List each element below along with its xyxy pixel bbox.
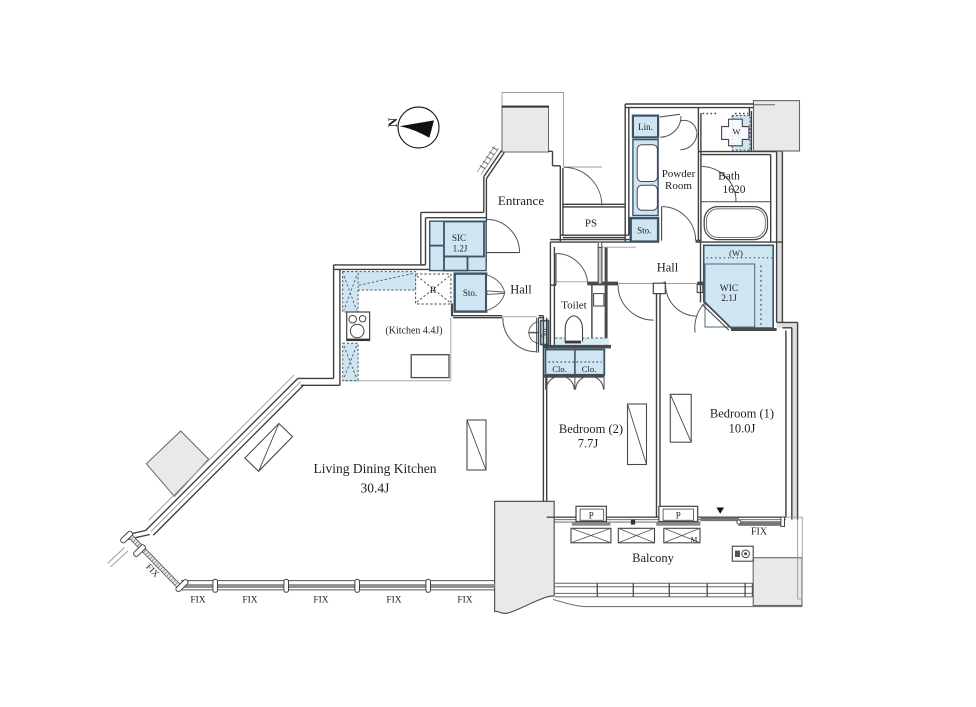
svg-text:Clo.: Clo. xyxy=(552,364,566,374)
svg-text:FIX: FIX xyxy=(386,596,401,606)
svg-text:Room: Room xyxy=(665,180,692,192)
svg-text:Clo.: Clo. xyxy=(582,364,596,374)
svg-text:Bedroom (1): Bedroom (1) xyxy=(710,407,774,421)
svg-text:Sto.: Sto. xyxy=(463,288,477,298)
svg-text:Hall: Hall xyxy=(510,283,532,297)
svg-text:R: R xyxy=(430,286,437,296)
svg-text:FIX: FIX xyxy=(313,596,328,606)
svg-text:Entrance: Entrance xyxy=(498,193,544,208)
svg-text:FIX: FIX xyxy=(751,527,768,538)
svg-text:Toilet: Toilet xyxy=(561,300,587,312)
svg-text:30.4J: 30.4J xyxy=(361,481,390,496)
svg-text:Living Dining Kitchen: Living Dining Kitchen xyxy=(314,461,437,476)
svg-text:2.1J: 2.1J xyxy=(721,294,737,304)
svg-text:Balcony: Balcony xyxy=(632,551,674,565)
svg-text:Lin.: Lin. xyxy=(638,122,653,132)
svg-text:Bath: Bath xyxy=(718,171,740,183)
svg-text:Bedroom (2): Bedroom (2) xyxy=(559,422,623,436)
svg-text:Sto.: Sto. xyxy=(637,226,651,236)
svg-text:7.7J: 7.7J xyxy=(578,437,599,451)
svg-text:1620: 1620 xyxy=(723,184,746,196)
svg-text:10.0J: 10.0J xyxy=(729,422,756,436)
svg-text:P: P xyxy=(676,511,681,521)
svg-text:Powder: Powder xyxy=(662,168,696,180)
svg-text:N: N xyxy=(385,117,400,127)
svg-text:FIX: FIX xyxy=(190,596,205,606)
svg-text:1.2J: 1.2J xyxy=(453,244,468,254)
svg-text:(Kitchen 4.4J): (Kitchen 4.4J) xyxy=(385,326,442,337)
svg-text:(W): (W) xyxy=(729,248,743,258)
svg-text:Sto.: Sto. xyxy=(542,327,549,338)
svg-text:M: M xyxy=(691,535,698,544)
svg-text:PS: PS xyxy=(585,218,597,230)
svg-text:P: P xyxy=(589,511,594,521)
svg-text:SIC: SIC xyxy=(452,233,466,243)
svg-text:FIX: FIX xyxy=(242,596,257,606)
svg-text:Hall: Hall xyxy=(657,261,679,275)
svg-text:FIX: FIX xyxy=(457,596,472,606)
svg-text:W: W xyxy=(732,127,740,137)
svg-text:WIC: WIC xyxy=(720,284,738,294)
